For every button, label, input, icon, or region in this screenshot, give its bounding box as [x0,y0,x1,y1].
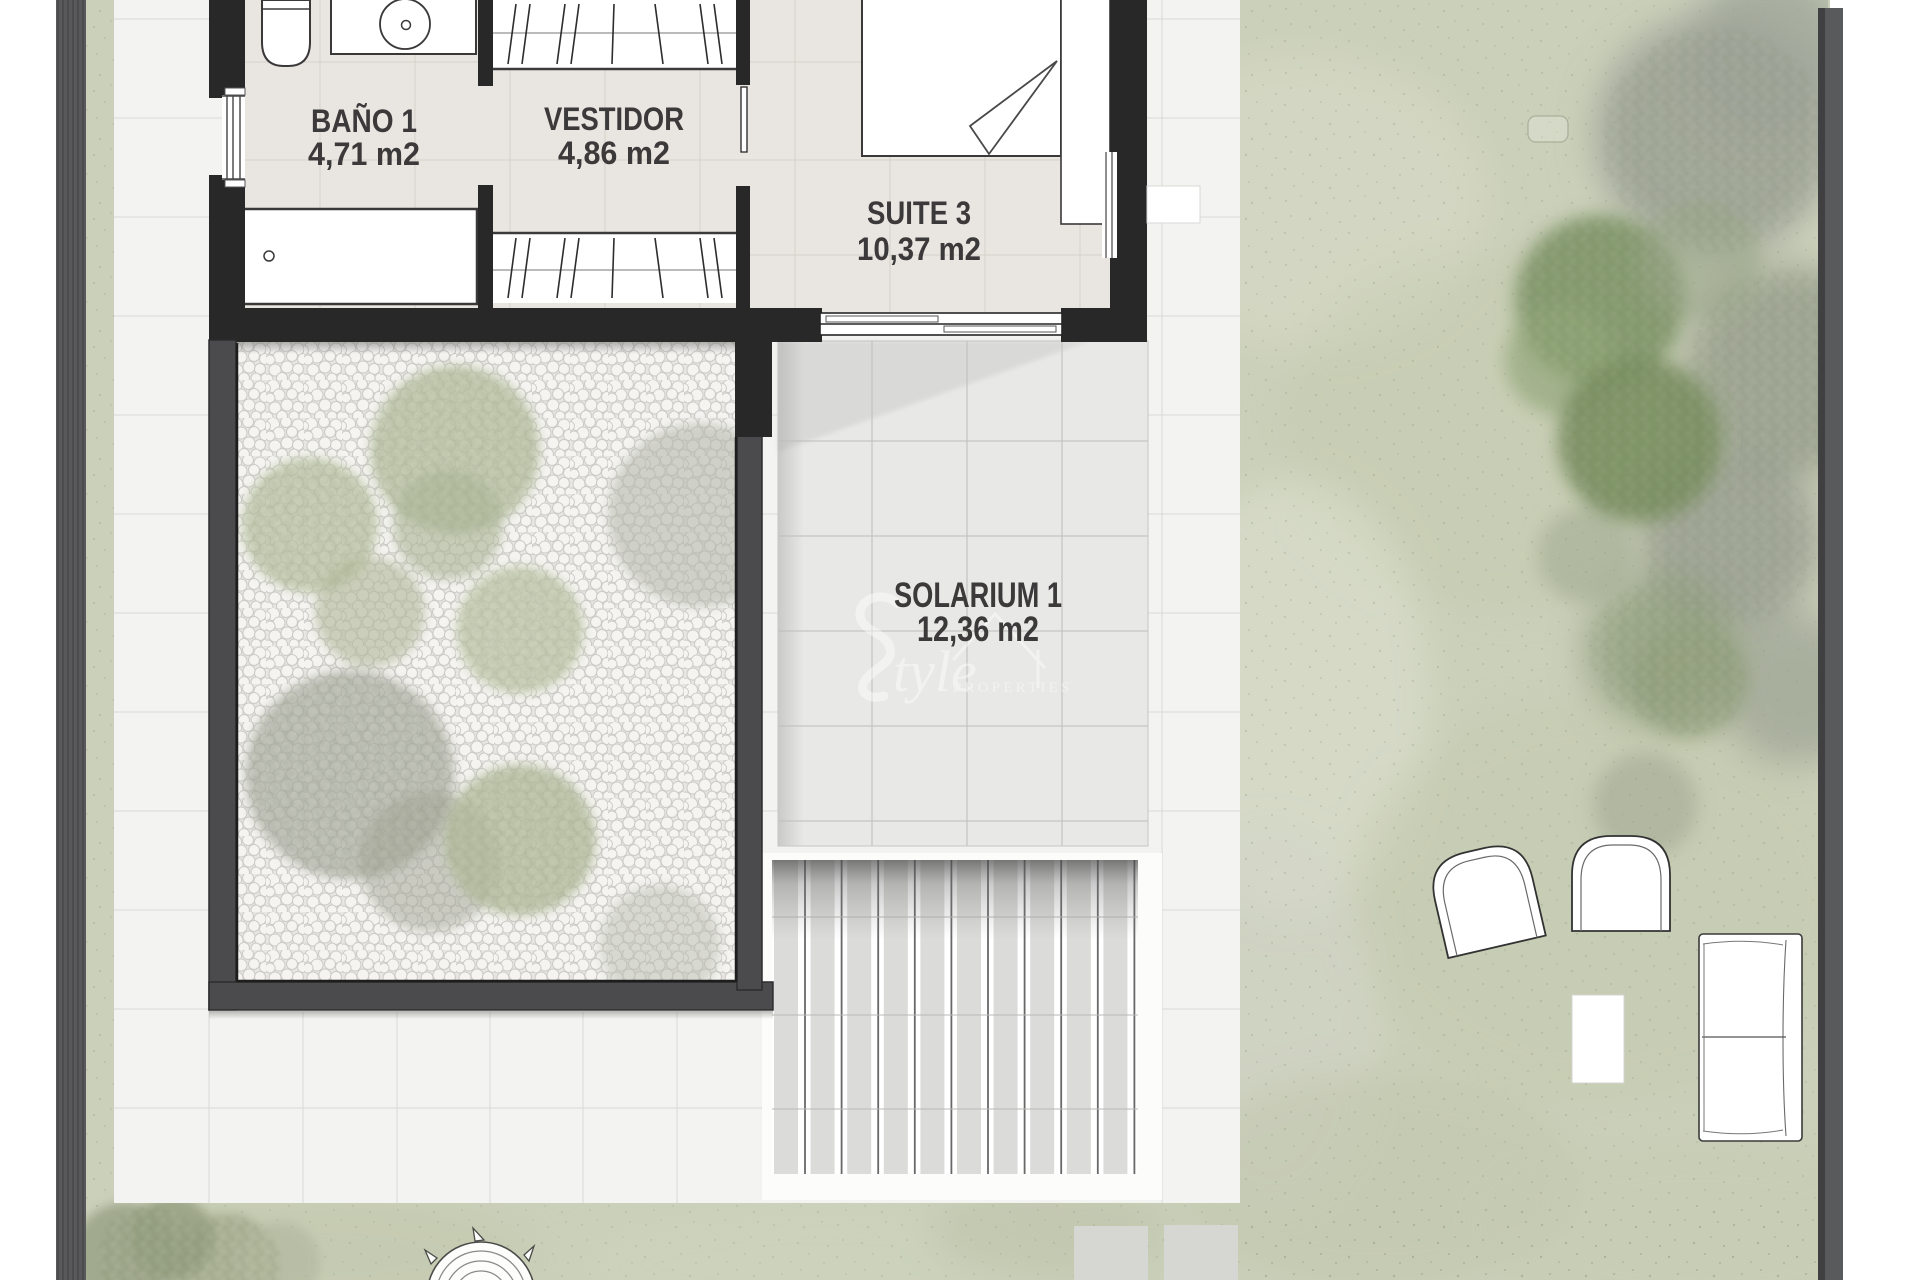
svg-text:PROPERTIES: PROPERTIES [953,680,1072,696]
svg-text:VESTIDOR: VESTIDOR [544,101,684,137]
svg-text:12,36 m2: 12,36 m2 [917,610,1039,649]
svg-text:10,37 m2: 10,37 m2 [857,231,981,267]
svg-text:BAÑO 1: BAÑO 1 [311,103,417,139]
svg-text:4,71 m2: 4,71 m2 [308,136,420,172]
svg-text:SUITE 3: SUITE 3 [867,195,971,231]
svg-text:4,86 m2: 4,86 m2 [558,135,670,171]
